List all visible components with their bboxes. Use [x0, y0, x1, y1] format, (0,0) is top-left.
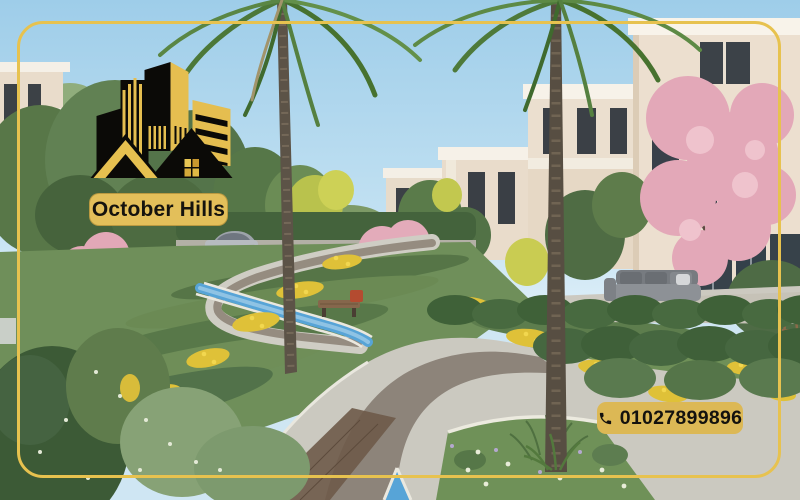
brand-name-label: October Hills: [92, 198, 225, 222]
buildings-skyline-logo-icon: [89, 54, 235, 186]
october-hills-banner: October Hills 01027899896: [0, 0, 800, 500]
brand-name-pill: October Hills: [89, 193, 228, 226]
phone-badge[interactable]: 01027899896: [597, 402, 743, 434]
outdoor-sofa: [604, 270, 701, 301]
phone-icon: [598, 411, 613, 426]
brand-logo: October Hills: [89, 54, 235, 229]
phone-number: 01027899896: [620, 407, 743, 430]
